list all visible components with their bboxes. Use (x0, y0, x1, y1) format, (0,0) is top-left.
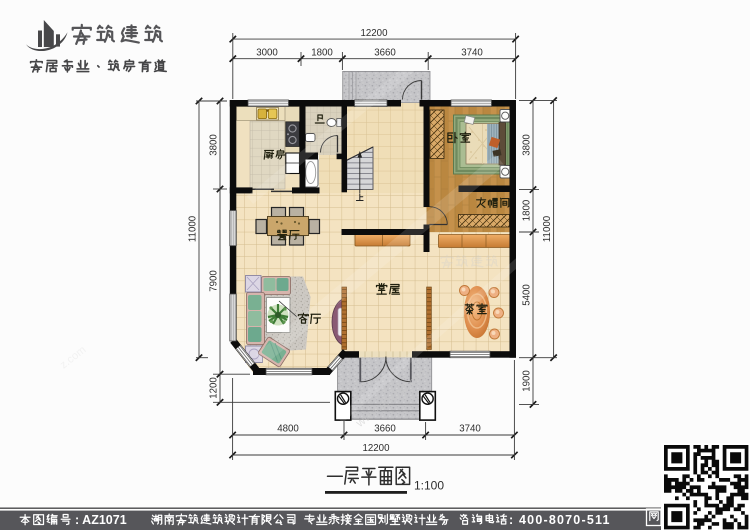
svg-text:3800: 3800 (522, 134, 533, 156)
svg-text:7900: 7900 (209, 270, 220, 292)
svg-text:: AZ1071: : AZ1071 (75, 513, 127, 527)
svg-text:1:100: 1:100 (414, 479, 444, 493)
svg-text:1800: 1800 (522, 199, 533, 221)
svg-text:11000: 11000 (188, 215, 199, 242)
svg-text:1900: 1900 (522, 370, 533, 392)
svg-text:12200: 12200 (361, 28, 389, 39)
svg-text:1200: 1200 (209, 377, 220, 399)
svg-text:3740: 3740 (461, 48, 483, 59)
svg-text:5400: 5400 (522, 284, 533, 306)
svg-text:3800: 3800 (209, 134, 220, 156)
svg-text:: 400-8070-511: : 400-8070-511 (509, 513, 611, 527)
svg-text:4800: 4800 (277, 424, 299, 435)
svg-text:12200: 12200 (363, 443, 391, 454)
svg-text:3000: 3000 (256, 48, 278, 59)
svg-text:1800: 1800 (311, 48, 333, 59)
svg-text:3660: 3660 (374, 424, 396, 435)
svg-text:11000: 11000 (542, 215, 553, 242)
svg-text:3660: 3660 (374, 48, 396, 59)
svg-text:3740: 3740 (459, 424, 481, 435)
